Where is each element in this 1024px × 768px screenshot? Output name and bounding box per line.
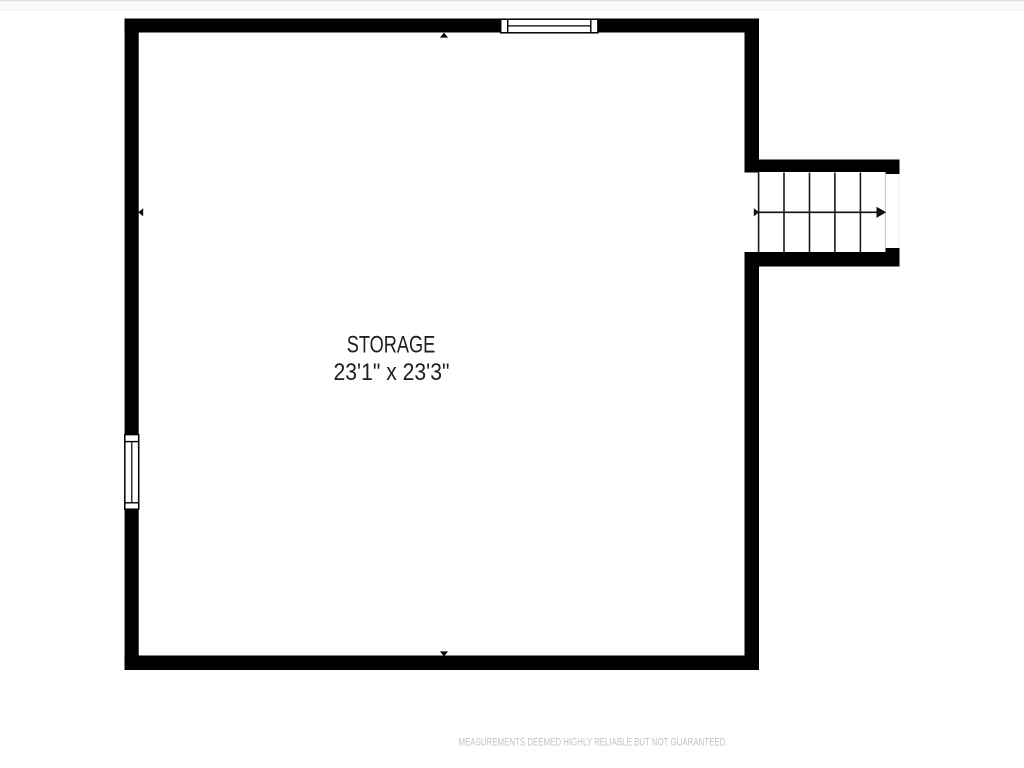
svg-text:STORAGE: STORAGE <box>347 332 436 359</box>
svg-text:23'1" x 23'3": 23'1" x 23'3" <box>334 359 450 386</box>
svg-text:MEASUREMENTS DEEMED HIGHLY REL: MEASUREMENTS DEEMED HIGHLY RELIABLE BUT … <box>459 737 728 749</box>
